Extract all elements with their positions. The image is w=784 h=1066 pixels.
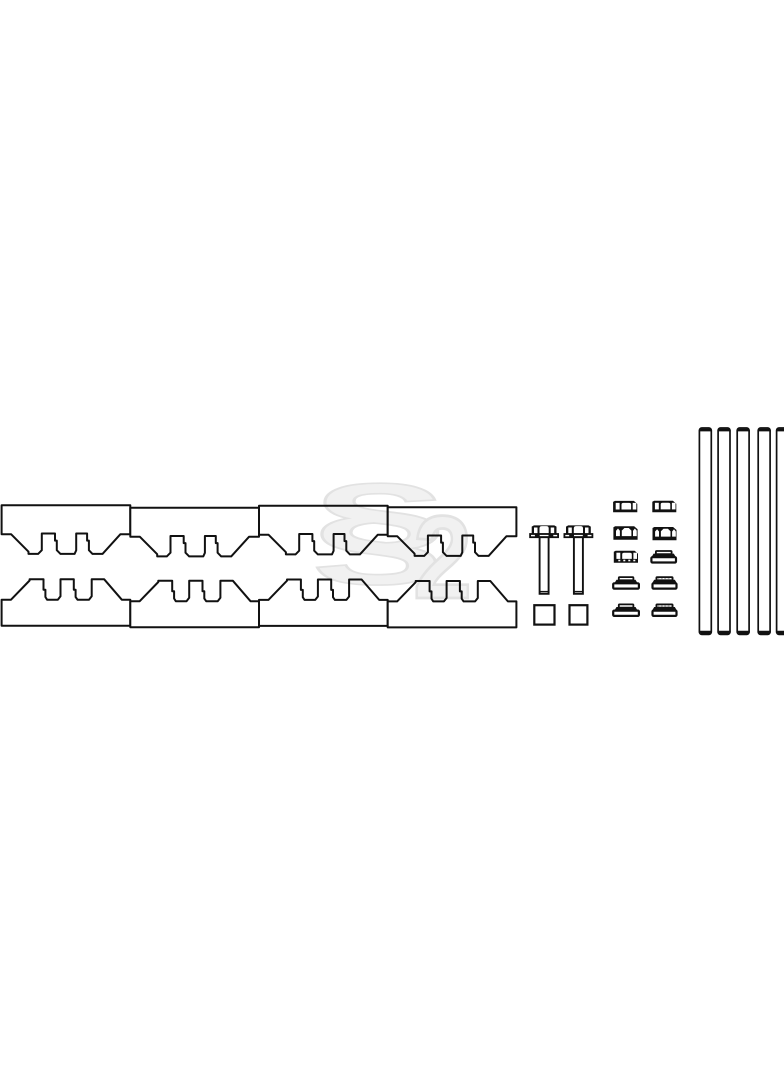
svg-text:2: 2	[413, 491, 472, 623]
